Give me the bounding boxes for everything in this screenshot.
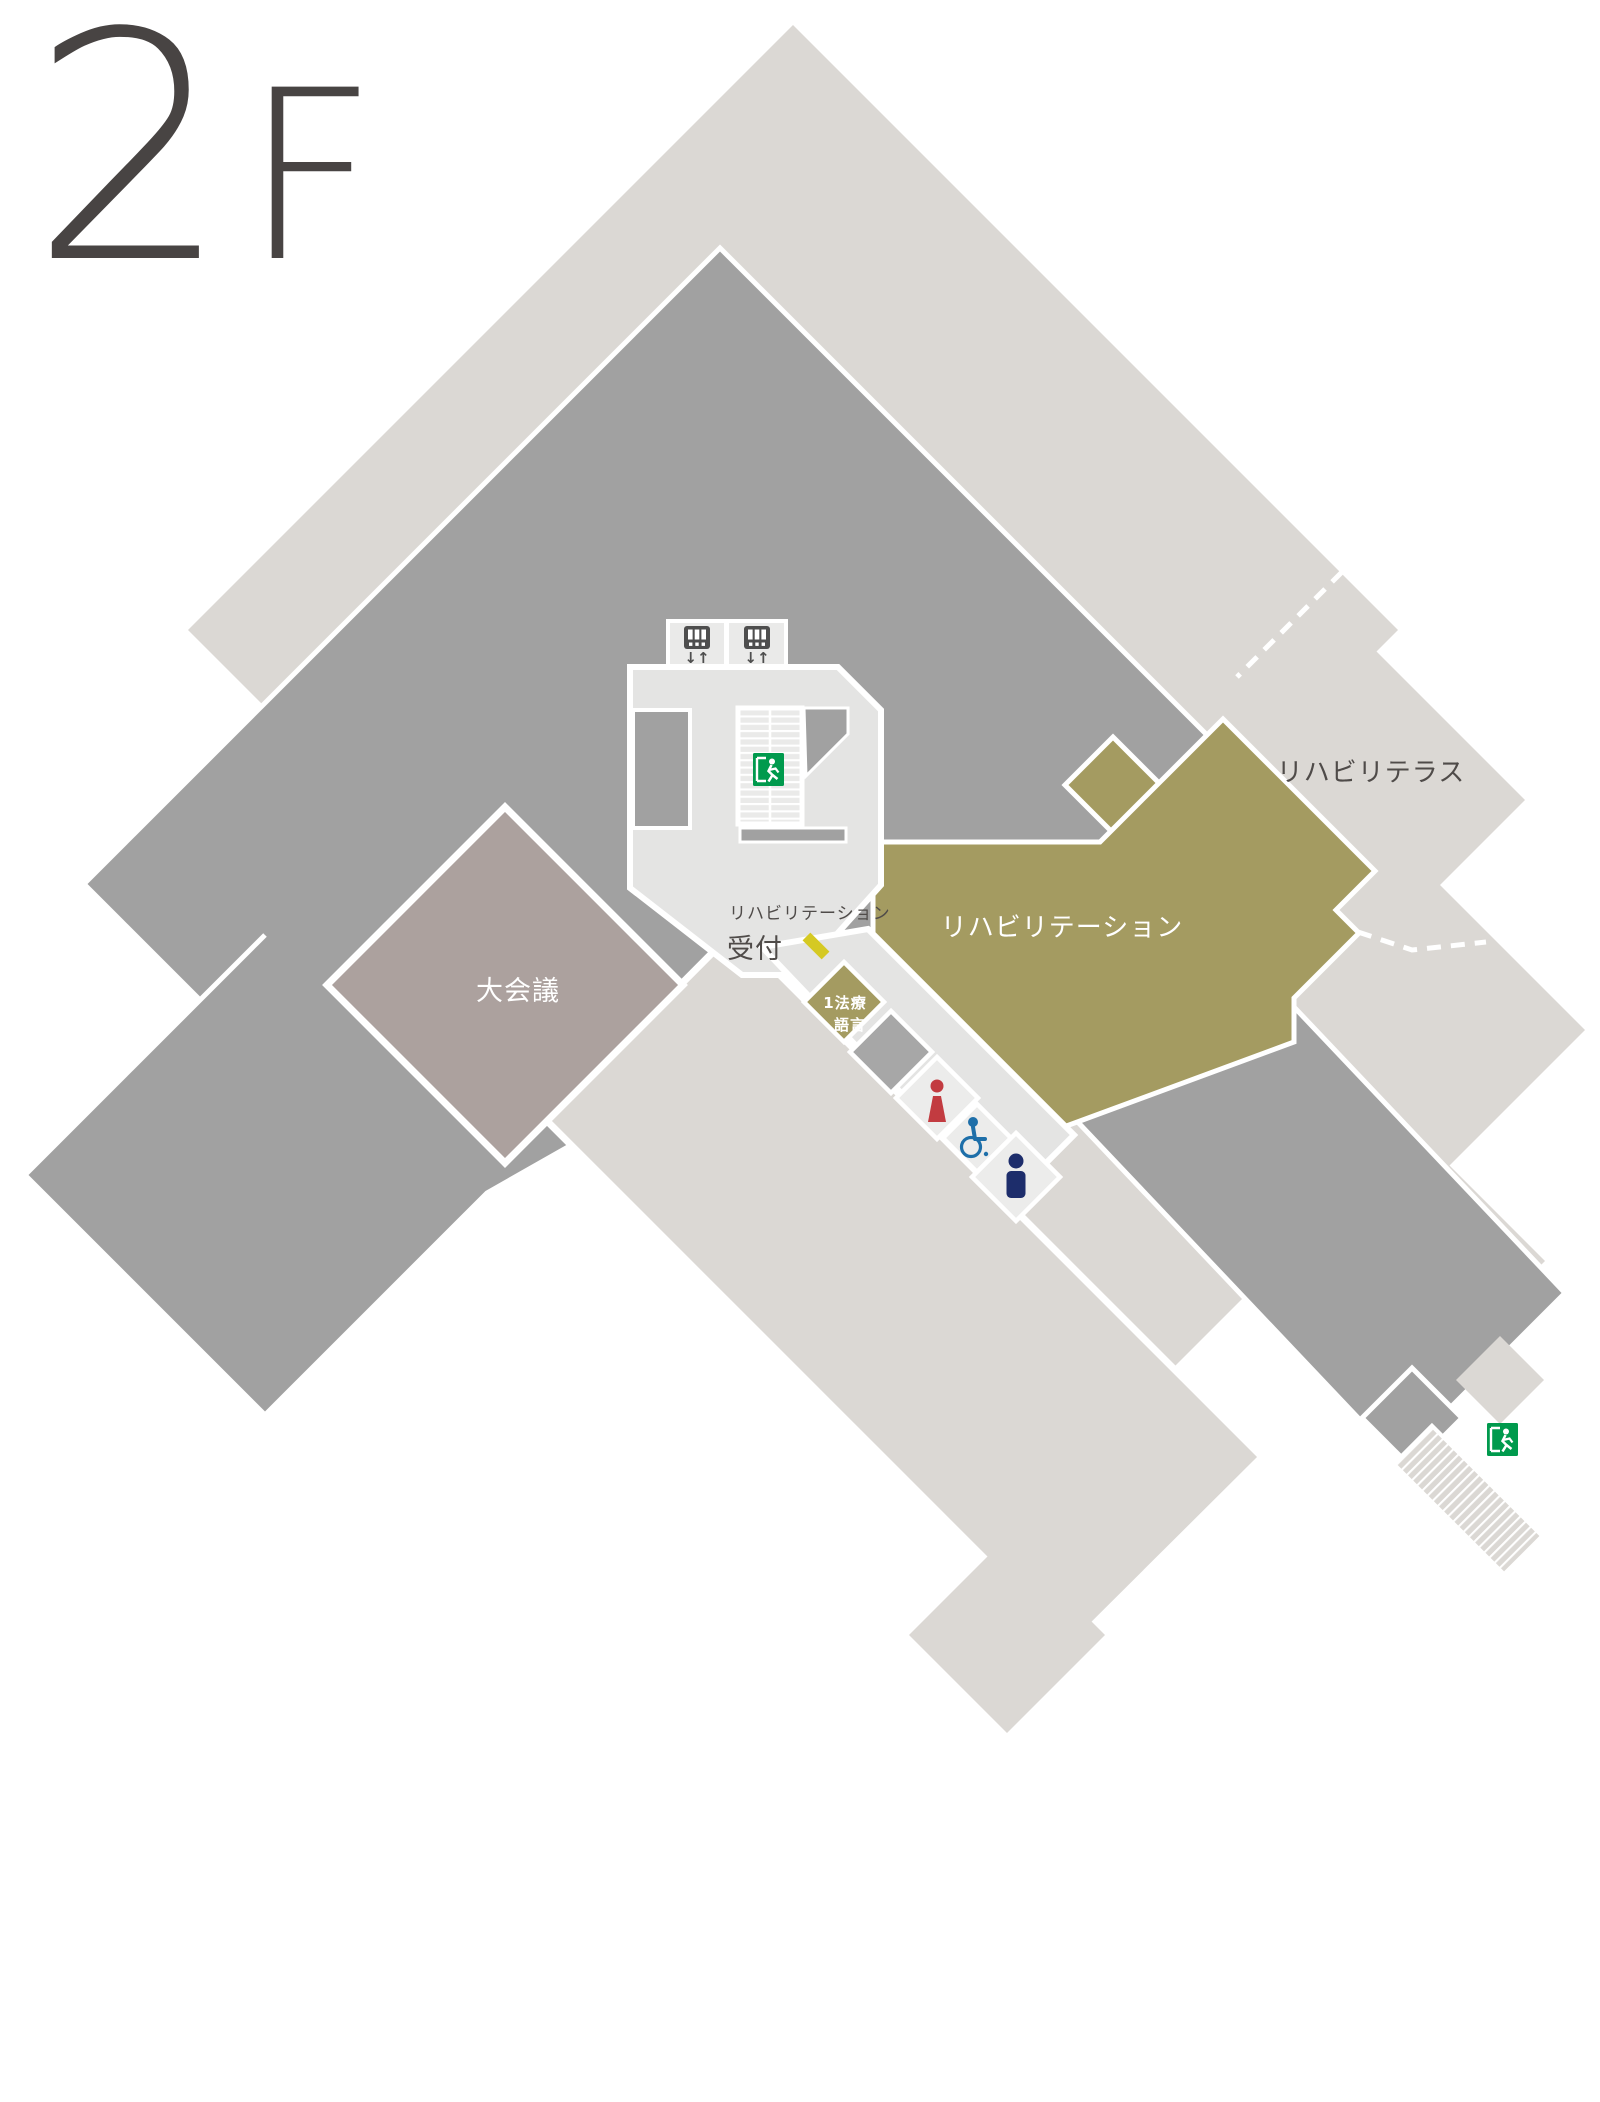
floor-number: 2 (30, 0, 230, 333)
elevator-1: ↓↑ (668, 621, 726, 667)
emergency-exit-icon-stairwell (753, 753, 784, 786)
hub-dark-strip (740, 828, 846, 842)
reception-label: 受付 (727, 934, 783, 965)
rehabilitation-label: リハビリテーション (941, 913, 1183, 943)
elevator-icon (684, 626, 710, 649)
speech-room-label-line2: 語言 (834, 1016, 866, 1034)
terrace-label: リハビリテラス (1277, 758, 1465, 788)
outdoor-stairs (1394, 1426, 1542, 1574)
floor-title: 2 F (30, 0, 378, 333)
floor-suffix: F (243, 41, 378, 314)
elevator-arrows: ↓↑ (684, 649, 709, 667)
floor-plan-2f: リハビリテーション 大会議 ↓↑ ↓↑ (0, 0, 1600, 2102)
floor-plan-page: リハビリテーション 大会議 ↓↑ ↓↑ (0, 0, 1600, 2102)
reception-label-small: リハビリテーション (729, 904, 891, 924)
hub-inner-block (633, 710, 690, 828)
meeting-room-label: 大会議 (476, 976, 560, 1007)
stairs-icon (1394, 1426, 1542, 1574)
elevator-icon (744, 626, 770, 649)
elevator-2: ↓↑ (727, 621, 786, 667)
speech-room-label-line1: 1法療 (823, 994, 866, 1012)
male-icon (1007, 1154, 1026, 1199)
emergency-exit-icon-outdoor (1487, 1423, 1518, 1456)
elevator-arrows: ↓↑ (744, 649, 769, 667)
